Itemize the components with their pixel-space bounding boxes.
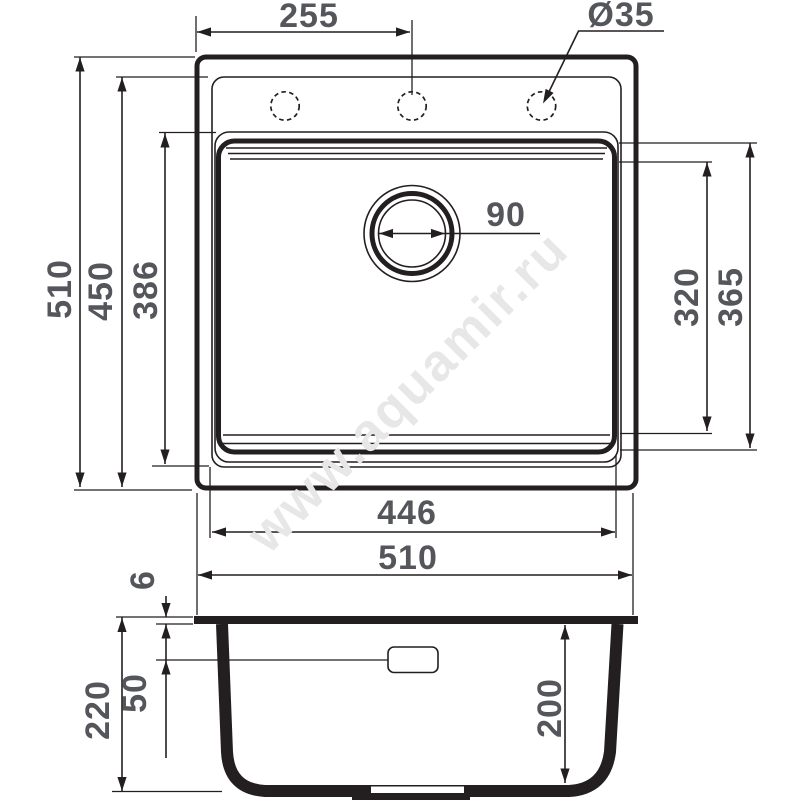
dim-bowl-inner-depth-1: 320	[670, 267, 704, 327]
dim-faucet-hole-offset: 255	[279, 0, 339, 33]
dim-overall-width: 510	[378, 541, 438, 575]
dim-faucet-hole-diameter: Ø35	[587, 0, 654, 32]
sink-technical-drawing: www.aquamir.ru 255 Ø35 90 446 510 510 45…	[0, 0, 800, 800]
dim-overflow-offset: 50	[118, 673, 152, 713]
dim-overall-height: 510	[43, 259, 77, 319]
dim-bowl-height: 386	[129, 260, 163, 320]
dim-bowl-inner-depth-2: 365	[714, 267, 748, 327]
dim-inner-rim-height: 450	[84, 261, 118, 321]
dim-rim-thickness: 6	[126, 570, 160, 590]
dim-drain-diameter: 90	[486, 198, 526, 232]
dim-bowl-width: 446	[377, 496, 437, 530]
dim-total-depth: 220	[81, 680, 115, 740]
dim-bowl-depth: 200	[533, 678, 567, 738]
